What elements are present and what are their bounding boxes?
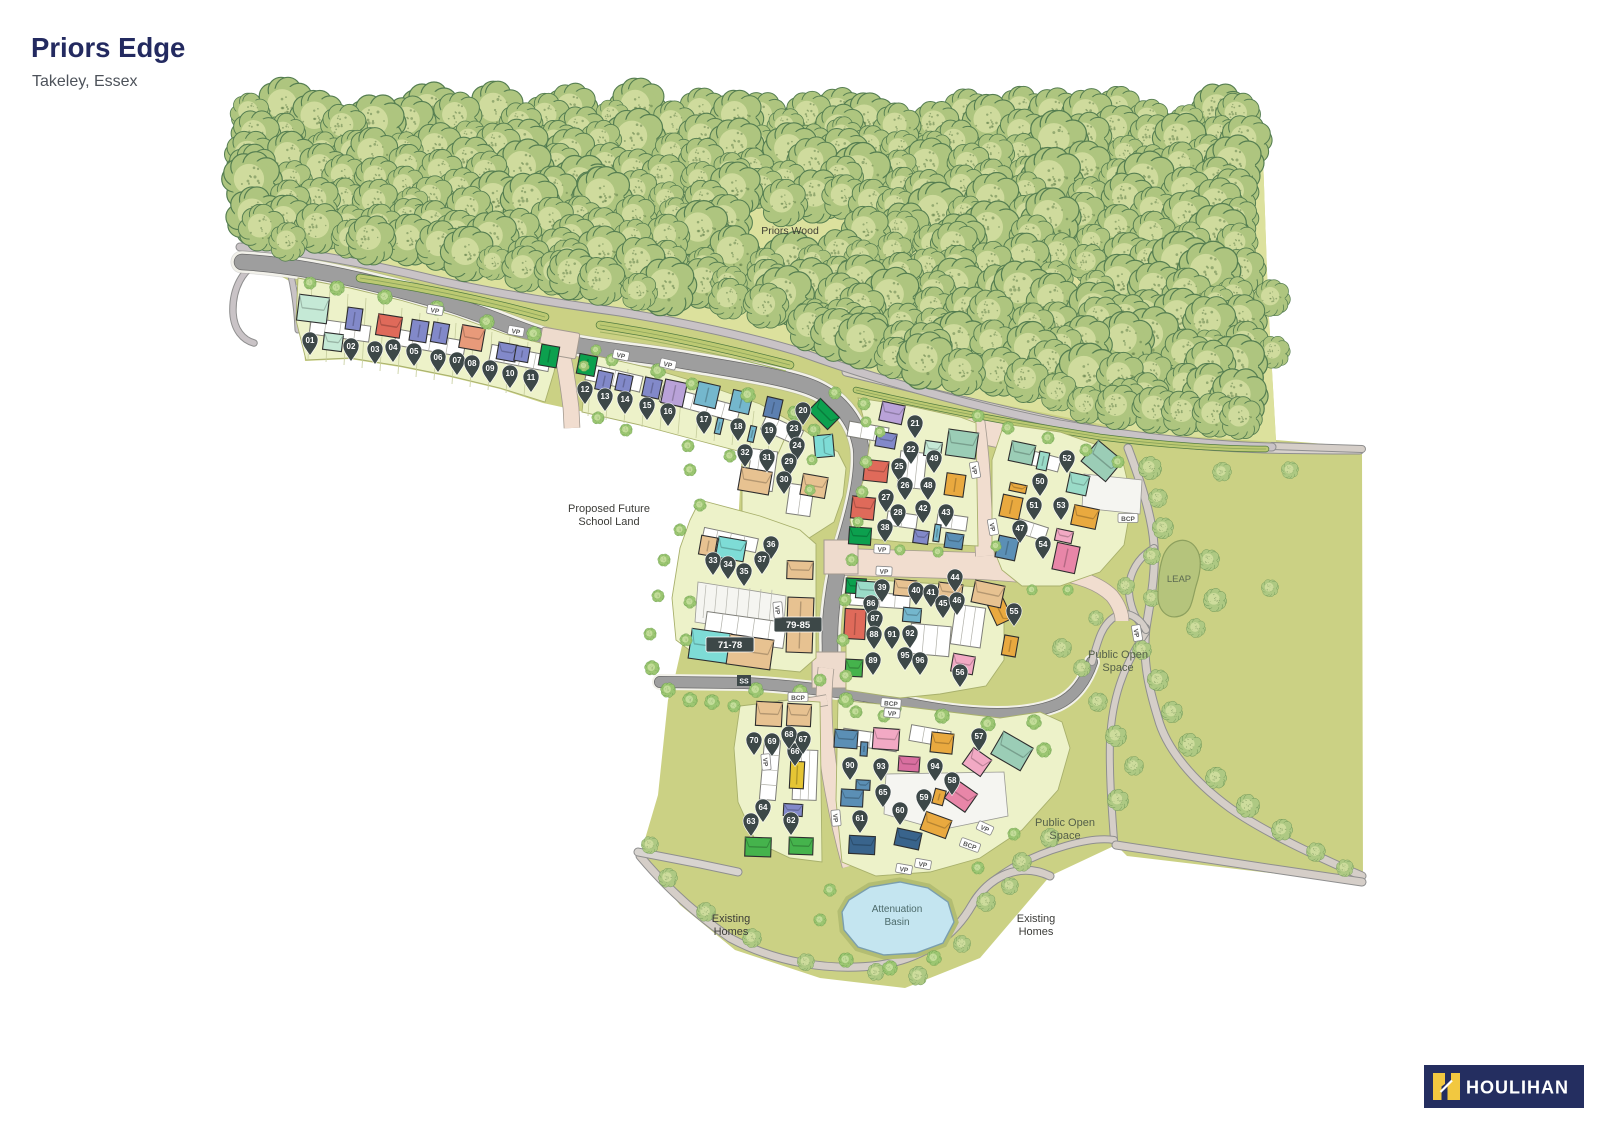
svg-text:Priors Wood: Priors Wood [761,225,819,237]
svg-text:54: 54 [1039,540,1048,549]
svg-text:Public Open: Public Open [1088,649,1148,661]
svg-text:13: 13 [601,392,610,401]
svg-text:47: 47 [1016,524,1025,533]
svg-text:SS: SS [739,679,749,686]
svg-text:44: 44 [951,573,960,582]
svg-text:91: 91 [888,630,897,639]
svg-text:LEAP: LEAP [1167,574,1191,585]
svg-text:Public Open: Public Open [1035,817,1095,829]
svg-text:31: 31 [763,453,772,462]
svg-text:35: 35 [740,567,749,576]
svg-text:51: 51 [1030,501,1039,510]
svg-text:18: 18 [734,422,743,431]
svg-text:BCP: BCP [791,695,805,702]
svg-text:02: 02 [347,342,356,351]
svg-text:05: 05 [410,347,419,356]
svg-text:VP: VP [773,605,781,615]
svg-text:90: 90 [846,761,855,770]
svg-text:92: 92 [906,629,915,638]
svg-text:61: 61 [856,814,865,823]
svg-text:VP: VP [879,569,889,576]
svg-text:96: 96 [916,656,925,665]
svg-text:11: 11 [527,373,536,382]
svg-text:14: 14 [621,395,630,404]
svg-text:38: 38 [881,523,890,532]
svg-text:29: 29 [785,457,794,466]
svg-text:Space: Space [1102,662,1133,674]
svg-text:21: 21 [911,419,920,428]
svg-text:30: 30 [780,475,789,484]
svg-text:70: 70 [750,736,759,745]
svg-text:BCP: BCP [884,700,899,708]
svg-text:School Land: School Land [578,516,639,528]
svg-text:Homes: Homes [714,926,749,938]
svg-text:26: 26 [901,481,910,490]
svg-text:50: 50 [1036,477,1045,486]
svg-text:HOULIHAN: HOULIHAN [1466,1078,1569,1098]
svg-text:71-78: 71-78 [718,640,742,651]
svg-text:09: 09 [486,364,495,373]
svg-text:60: 60 [896,806,905,815]
svg-text:45: 45 [939,599,948,608]
svg-text:17: 17 [700,415,709,424]
svg-text:58: 58 [948,776,957,785]
svg-text:79-85: 79-85 [786,620,811,631]
svg-text:15: 15 [643,401,652,410]
svg-text:68: 68 [785,730,794,739]
svg-text:93: 93 [877,762,886,771]
svg-text:BCP: BCP [1121,516,1135,523]
svg-text:24: 24 [793,441,802,450]
svg-text:28: 28 [894,508,903,517]
svg-text:16: 16 [664,407,673,416]
svg-text:57: 57 [975,732,984,741]
svg-text:19: 19 [765,426,774,435]
svg-text:67: 67 [799,735,808,744]
svg-text:94: 94 [931,762,940,771]
svg-text:Existing: Existing [1017,913,1056,925]
svg-text:52: 52 [1063,454,1072,463]
svg-text:33: 33 [709,556,718,565]
svg-text:08: 08 [468,359,477,368]
svg-text:Existing: Existing [712,913,751,925]
svg-text:Basin: Basin [884,917,909,928]
svg-text:23: 23 [790,424,799,433]
svg-text:48: 48 [924,481,933,490]
svg-text:40: 40 [912,586,921,595]
svg-text:53: 53 [1057,501,1066,510]
svg-text:20: 20 [799,406,808,415]
svg-text:64: 64 [759,803,768,812]
svg-text:01: 01 [306,336,315,345]
svg-text:34: 34 [724,560,733,569]
svg-text:Proposed Future: Proposed Future [568,503,650,515]
svg-text:25: 25 [895,462,904,471]
svg-text:49: 49 [930,454,939,463]
svg-text:62: 62 [787,816,796,825]
svg-text:59: 59 [920,793,929,802]
svg-text:12: 12 [581,385,590,394]
svg-text:Attenuation: Attenuation [872,904,923,915]
svg-text:41: 41 [927,588,936,597]
svg-text:10: 10 [506,369,515,378]
svg-text:VP: VP [877,547,887,554]
svg-text:65: 65 [879,788,888,797]
svg-text:32: 32 [741,448,750,457]
svg-text:87: 87 [871,614,880,623]
svg-text:Homes: Homes [1019,926,1054,938]
svg-text:69: 69 [768,737,777,746]
svg-text:27: 27 [882,493,891,502]
svg-text:46: 46 [953,596,962,605]
svg-text:07: 07 [453,356,462,365]
svg-text:42: 42 [919,504,928,513]
svg-text:Priors Edge: Priors Edge [31,32,185,63]
svg-text:06: 06 [434,353,443,362]
svg-text:Space: Space [1049,830,1080,842]
svg-text:VP: VP [831,813,839,823]
svg-text:55: 55 [1010,607,1019,616]
svg-text:56: 56 [956,668,965,677]
svg-text:Takeley, Essex: Takeley, Essex [32,73,138,90]
svg-text:39: 39 [878,583,887,592]
svg-text:03: 03 [371,345,380,354]
svg-text:37: 37 [758,555,767,564]
svg-text:VP: VP [761,757,769,767]
svg-text:95: 95 [901,651,910,660]
svg-text:89: 89 [869,656,878,665]
svg-text:VP: VP [887,710,897,718]
svg-text:22: 22 [907,445,916,454]
svg-text:43: 43 [942,508,951,517]
svg-text:63: 63 [747,817,756,826]
svg-text:04: 04 [389,343,398,352]
svg-text:88: 88 [870,630,879,639]
svg-text:36: 36 [767,540,776,549]
svg-text:86: 86 [867,599,876,608]
